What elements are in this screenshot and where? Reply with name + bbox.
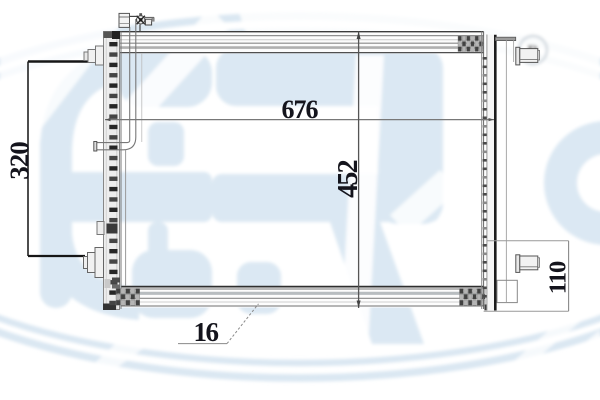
svg-text:16: 16 bbox=[194, 317, 219, 347]
svg-text:110: 110 bbox=[545, 261, 572, 294]
svg-text:452: 452 bbox=[333, 160, 364, 197]
svg-text:320: 320 bbox=[5, 142, 35, 180]
svg-text:676: 676 bbox=[282, 95, 319, 124]
